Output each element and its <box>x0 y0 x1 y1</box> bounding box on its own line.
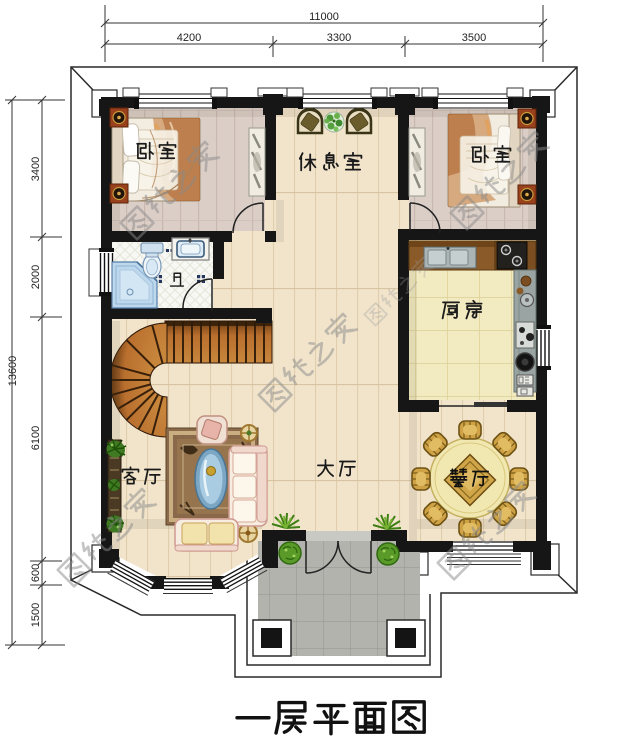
svg-text:3500: 3500 <box>462 32 486 44</box>
svg-text:1500: 1500 <box>30 603 42 627</box>
svg-text:2000: 2000 <box>30 265 42 289</box>
svg-text:4200: 4200 <box>177 32 201 44</box>
svg-text:3400: 3400 <box>30 157 42 181</box>
svg-text:13600: 13600 <box>7 356 19 387</box>
svg-text:6100: 6100 <box>30 426 42 450</box>
svg-text:11000: 11000 <box>309 11 339 23</box>
svg-text:600: 600 <box>30 564 42 582</box>
svg-text:3300: 3300 <box>327 32 351 44</box>
